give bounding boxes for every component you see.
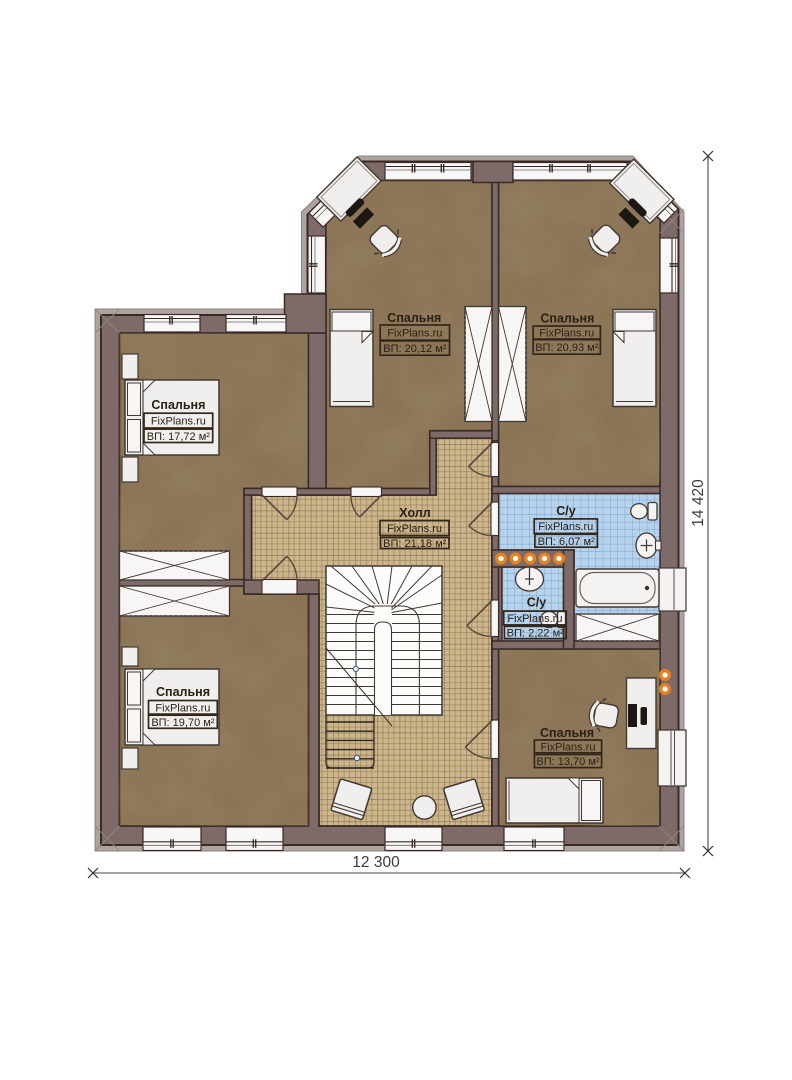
svg-text:ВП: 19,70 м²: ВП: 19,70 м² <box>151 717 215 729</box>
svg-text:С/у: С/у <box>556 504 576 518</box>
svg-text:ВП: 13,70 м²: ВП: 13,70 м² <box>536 756 600 768</box>
svg-text:Спальня: Спальня <box>156 685 210 699</box>
svg-text:FixPlans.ru: FixPlans.ru <box>540 741 595 753</box>
svg-text:FixPlans.ru: FixPlans.ru <box>387 328 442 340</box>
svg-text:Спальня: Спальня <box>540 726 594 740</box>
svg-text:ВП: 17,72 м²: ВП: 17,72 м² <box>147 431 211 443</box>
svg-text:FixPlans.ru: FixPlans.ru <box>387 523 442 535</box>
svg-text:FixPlans.ru: FixPlans.ru <box>155 702 210 714</box>
svg-text:ВП: 20,12 м²: ВП: 20,12 м² <box>383 343 447 355</box>
svg-text:С/у: С/у <box>527 596 547 610</box>
svg-text:Спальня: Спальня <box>540 312 594 326</box>
svg-text:ВП: 21,18 м²: ВП: 21,18 м² <box>383 538 447 550</box>
svg-text:FixPlans.ru: FixPlans.ru <box>539 328 594 340</box>
svg-text:FixPlans.ru: FixPlans.ru <box>151 416 206 428</box>
svg-text:Спальня: Спальня <box>387 311 441 325</box>
svg-text:ВП: 2,22 м²: ВП: 2,22 м² <box>507 627 564 639</box>
svg-text:FixPlans.ru: FixPlans.ru <box>507 613 562 625</box>
svg-text:ВП: 6,07 м²: ВП: 6,07 м² <box>538 536 595 548</box>
svg-text:12 300: 12 300 <box>352 854 400 871</box>
svg-text:Спальня: Спальня <box>151 398 205 412</box>
svg-text:ВП: 20,93 м²: ВП: 20,93 м² <box>535 342 599 354</box>
svg-text:14 420: 14 420 <box>690 479 707 527</box>
svg-text:Холл: Холл <box>399 506 430 520</box>
svg-text:FixPlans.ru: FixPlans.ru <box>538 521 593 533</box>
